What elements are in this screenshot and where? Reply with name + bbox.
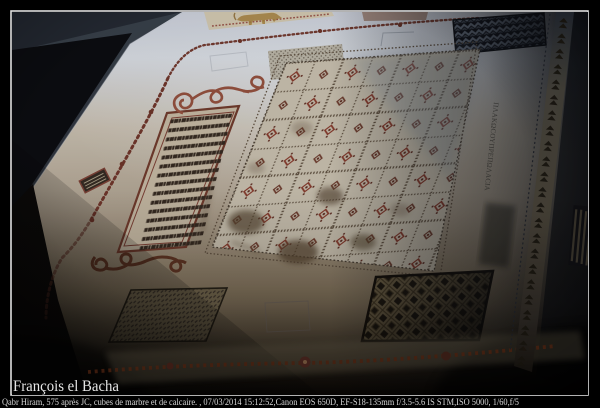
svg-text:François el Bacha: François el Bacha	[13, 378, 119, 395]
svg-text:Qabr Hiram, 575 après JC, cube: Qabr Hiram, 575 après JC, cubes de marbr…	[2, 397, 519, 407]
